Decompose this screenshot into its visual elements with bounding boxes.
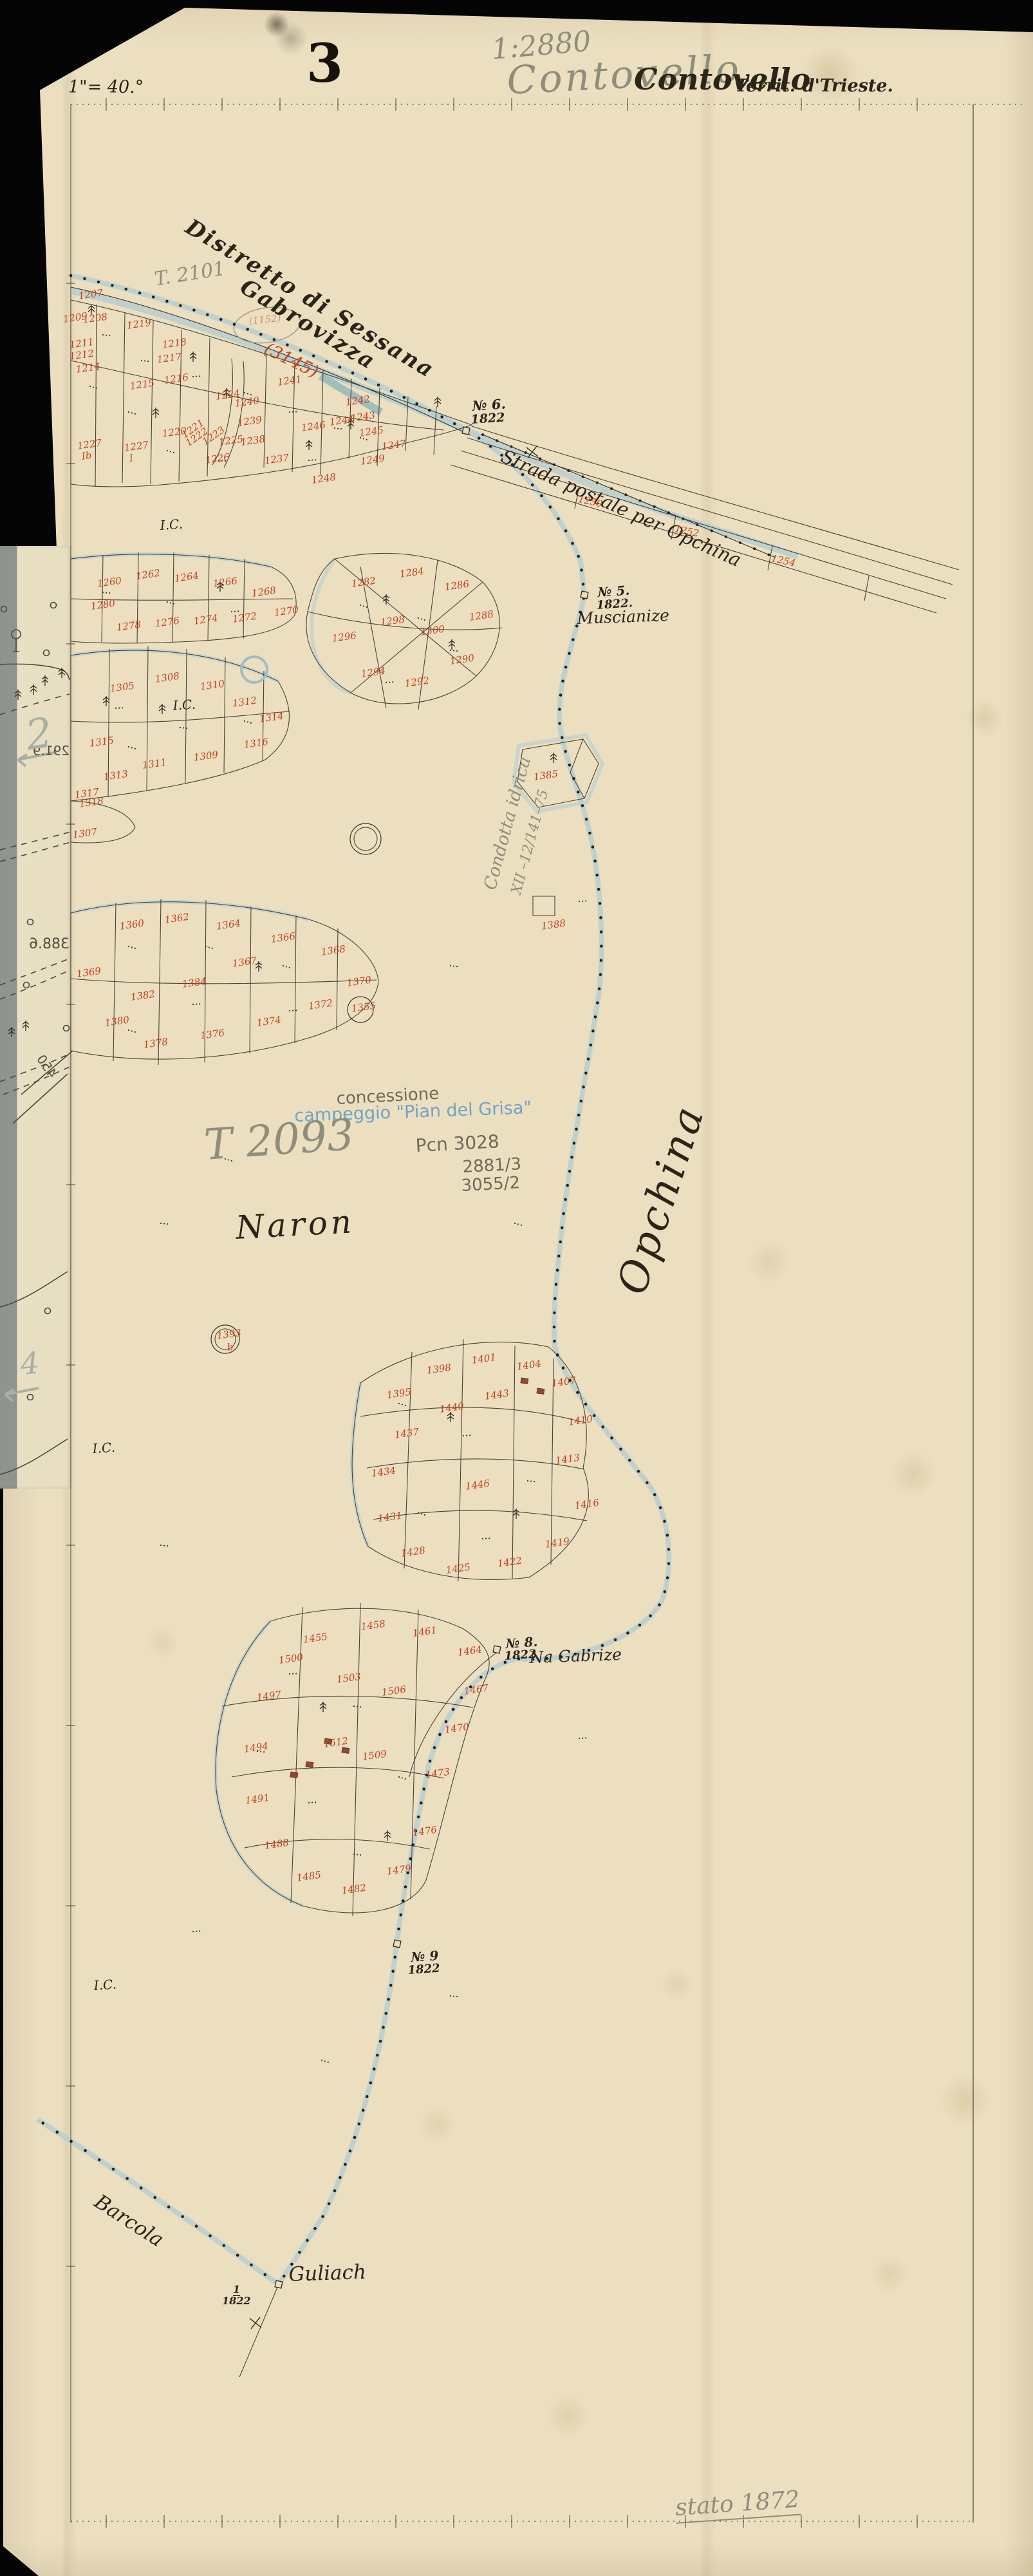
tree-icon	[15, 690, 21, 700]
soil-dots	[244, 392, 252, 395]
tree-icon	[153, 408, 159, 418]
soil-dots	[360, 437, 368, 440]
soil-dots	[128, 946, 136, 949]
soil-dots	[289, 409, 297, 414]
soil-dots	[192, 374, 201, 379]
tree-icon	[23, 1020, 29, 1031]
overlay-circle-mark	[1, 606, 7, 612]
tree-icon	[384, 1830, 391, 1841]
tree-icon	[223, 388, 230, 399]
soil-dots	[360, 605, 368, 608]
soil-dots	[579, 1736, 587, 1740]
tree-icon	[8, 1027, 15, 1037]
soil-dots	[450, 964, 458, 968]
map-linework	[0, 0, 1033, 2576]
ring-parcel-inner	[354, 827, 377, 851]
boundary-stone-marker	[462, 427, 470, 435]
tree-icon	[434, 397, 441, 407]
tree-icon	[320, 1702, 326, 1712]
soil-dots	[128, 746, 136, 749]
ring-parcel	[211, 1325, 239, 1353]
soil-dots	[283, 965, 291, 968]
map-sheet-scan: 3 1:2880 Contovello Contovello Territ: d…	[0, 0, 1033, 2576]
soil-dots	[289, 1671, 297, 1676]
house-block	[537, 1388, 544, 1394]
soil-dots	[128, 411, 136, 415]
house-block	[306, 1762, 313, 1767]
ring-parcel	[348, 997, 373, 1022]
house-block	[521, 1378, 528, 1384]
survey-cross-mark	[250, 2317, 261, 2329]
parcel-linework	[71, 300, 959, 1916]
soil-dots	[244, 720, 252, 724]
tree-icon	[159, 704, 165, 714]
soil-dots	[102, 334, 111, 337]
tree-icon	[550, 753, 557, 763]
overlay-circle-mark	[51, 603, 57, 608]
tree-icon	[447, 1412, 454, 1422]
tree-icon	[513, 1509, 519, 1519]
overlay-circle-mark	[28, 919, 33, 925]
soil-dots	[160, 1222, 169, 1225]
tree-icon	[348, 419, 354, 429]
soil-dots	[289, 1008, 297, 1013]
tree-icon	[190, 352, 196, 362]
house-block	[342, 1747, 349, 1753]
soil-dots	[353, 1705, 362, 1708]
overlay-circle-mark	[64, 1026, 70, 1031]
soil-dots	[180, 726, 188, 729]
house-block	[290, 1772, 298, 1778]
watercolor-boundary-shading	[37, 276, 798, 2284]
ring-parcel-inner	[215, 1329, 236, 1349]
soil-dots	[231, 609, 239, 614]
tree-icon	[42, 675, 48, 686]
tree-icon	[30, 684, 37, 695]
soil-dots	[205, 946, 214, 949]
soil-dots	[398, 1776, 407, 1780]
house-block	[324, 1738, 332, 1744]
soil-dots	[308, 458, 317, 462]
district-boundary-dotted	[37, 276, 776, 2284]
soil-dots	[463, 1433, 471, 1438]
soil-dots	[192, 1929, 201, 1933]
ring-parcel	[350, 823, 381, 854]
overlay-circle-mark	[24, 982, 30, 988]
soil-dots	[450, 1995, 458, 1998]
soil-dots	[192, 1002, 201, 1006]
tree-icon	[103, 696, 109, 706]
roads	[71, 287, 776, 2377]
tree-icon	[256, 961, 262, 972]
soil-dots	[141, 359, 149, 362]
soil-dots	[527, 1480, 535, 1483]
soil-dots	[128, 1029, 136, 1033]
soil-dots	[450, 649, 458, 652]
soil-dots	[398, 1403, 407, 1406]
boundary-stone-marker	[393, 1940, 401, 1948]
soil-dots	[386, 680, 394, 684]
tree-icon	[306, 440, 312, 450]
soil-dots	[334, 427, 342, 430]
tree-icon	[449, 639, 455, 650]
soil-dots	[225, 1158, 233, 1161]
soil-dots	[160, 1544, 169, 1547]
soil-dots	[218, 459, 227, 462]
soil-dots	[321, 2060, 330, 2063]
soil-dots	[482, 1536, 490, 1541]
soil-dots	[167, 450, 175, 453]
boundary-stone-marker	[275, 2280, 283, 2288]
tree-icon	[88, 305, 95, 315]
boundary-stone-marker	[581, 591, 588, 599]
soil-dots	[418, 617, 426, 621]
tree-icon	[217, 581, 223, 592]
soil-dots	[102, 591, 111, 594]
soil-dots	[257, 1750, 265, 1753]
soil-dots	[308, 1800, 317, 1805]
overlay-circle-mark	[44, 650, 50, 656]
soil-dots	[115, 706, 124, 710]
boundary-stone-marker	[493, 1646, 501, 1653]
overlay-circle-mark	[28, 1395, 33, 1400]
overlay-circle-mark	[45, 1308, 51, 1314]
soil-dots	[579, 899, 587, 903]
soil-dots	[514, 1223, 523, 1226]
